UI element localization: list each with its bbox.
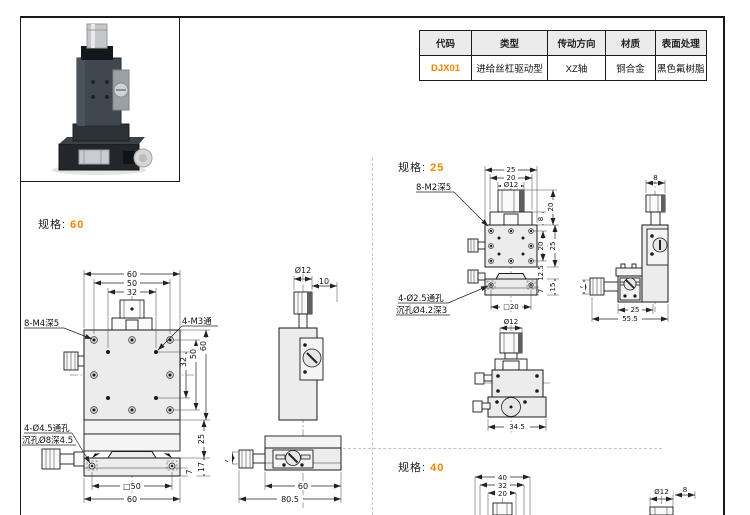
- cell-material: 铜合金: [606, 56, 656, 81]
- spec60-value: 60: [70, 219, 84, 231]
- dim-label: 20: [498, 490, 507, 498]
- dim-label: 25: [507, 166, 516, 174]
- dim-label: 50: [189, 349, 198, 359]
- col-type: 类型: [472, 31, 548, 56]
- dim-label: 25: [631, 306, 640, 314]
- spec25-front2-drawing: Ø12 34.5: [455, 315, 565, 437]
- spec40-value: 40: [430, 462, 444, 474]
- dim-label: 8: [683, 486, 687, 494]
- section-divider-horizontal: [338, 448, 662, 449]
- spec60-side-drawing: Ø12 10 7 60 80.5: [225, 262, 375, 512]
- cell-finish: 黑色氟树脂: [656, 56, 707, 81]
- dim-label: 32: [498, 482, 507, 490]
- dim-label: 60: [127, 270, 137, 279]
- holes8-label: 8-M2深5: [416, 183, 451, 193]
- stage-body: [473, 333, 546, 417]
- col-direction: 传动方向: [548, 31, 606, 56]
- dim-label: 7: [225, 459, 230, 463]
- through-hole-label: 4-Ø4.5通孔: [24, 423, 70, 434]
- cell-code: DJX01: [420, 56, 472, 81]
- front-view-dimensions: 40 32 20: [475, 473, 530, 515]
- dim-label: 25: [549, 242, 557, 251]
- dim-label: 55.5: [622, 315, 638, 322]
- stage-body: [468, 190, 537, 295]
- section-title-spec60: 规格: 60: [38, 216, 84, 232]
- cell-direction: XZ轴: [548, 56, 606, 81]
- dim-label: 60: [199, 341, 208, 351]
- spec25-side-drawing: 8 7 25 55.5: [580, 170, 750, 322]
- dim-label: 50: [127, 279, 137, 288]
- col-material: 材质: [606, 31, 656, 56]
- dim-label: 32: [127, 288, 137, 297]
- section-title-spec40: 规格: 40: [398, 459, 444, 475]
- dim-label: Ø12: [504, 318, 518, 326]
- col-code: 代码: [420, 31, 472, 56]
- dim-label: 25: [197, 434, 206, 444]
- cbore-label: 沉孔Ø4.2深3: [396, 305, 447, 316]
- dim-label: 10: [319, 277, 329, 286]
- side-view-dimensions: Ø12 8: [650, 485, 695, 515]
- dim-label: □20: [503, 303, 519, 311]
- spec-table-data-row: DJX01 进给丝杠驱动型 XZ轴 铜合金 黑色氟树脂: [420, 56, 707, 81]
- dim-label: 7: [185, 469, 194, 474]
- dim-label: Ø12: [504, 181, 518, 189]
- dim-label: 34.5: [509, 423, 525, 431]
- cell-type: 进给丝杠驱动型: [472, 56, 548, 81]
- dim-label: Ø12: [295, 265, 311, 275]
- spec60-front-drawing: 60 50 32 32 50 60 25 17 7 □50: [20, 262, 220, 512]
- spec40-label: 规格:: [398, 462, 426, 474]
- dim-label: 17: [197, 462, 206, 472]
- dim-label: 8: [653, 174, 657, 182]
- dim-label: 40: [498, 474, 507, 482]
- spec25-front-drawing: 25 20 Ø12 20 8 20 25 12.5 15: [390, 160, 590, 320]
- through-hole-label: 4-Ø2.5通孔: [398, 293, 444, 304]
- stage-body: [590, 195, 668, 302]
- holes8-label: 8-M4深5: [24, 319, 59, 329]
- spec40-partial-drawing: 40 32 20 Ø12 8: [455, 465, 735, 515]
- cbore-label: 沉孔Ø8深4.5: [22, 435, 73, 446]
- product-photo-box: [20, 16, 180, 182]
- dim-label: 12.5: [537, 265, 545, 281]
- dim-label: 20: [547, 203, 555, 212]
- stage-body: [239, 292, 341, 470]
- spec-table-header-row: 代码 类型 传动方向 材质 表面处理: [420, 31, 707, 56]
- dim-label: 7: [537, 289, 545, 293]
- dim-label: 8: [537, 217, 545, 221]
- holes4-label: 4-M3通: [182, 316, 212, 327]
- dim-label: 32: [179, 357, 188, 367]
- spec-table: 代码 类型 传动方向 材质 表面处理 DJX01 进给丝杠驱动型 XZ轴 铜合金…: [419, 30, 707, 81]
- dim-label: 15: [549, 283, 557, 292]
- dim-label: □50: [123, 482, 141, 491]
- spec60-label: 规格:: [38, 219, 66, 231]
- dim-label: 20: [537, 242, 545, 251]
- dim-label: 60: [127, 495, 137, 504]
- stage-body: [42, 300, 180, 476]
- col-finish: 表面处理: [656, 31, 707, 56]
- product-photo: [21, 18, 179, 180]
- dim-label: 7: [580, 285, 585, 289]
- dim-label: 80.5: [281, 495, 299, 504]
- dim-label: Ø12: [654, 488, 668, 496]
- dim-label: 60: [298, 482, 308, 491]
